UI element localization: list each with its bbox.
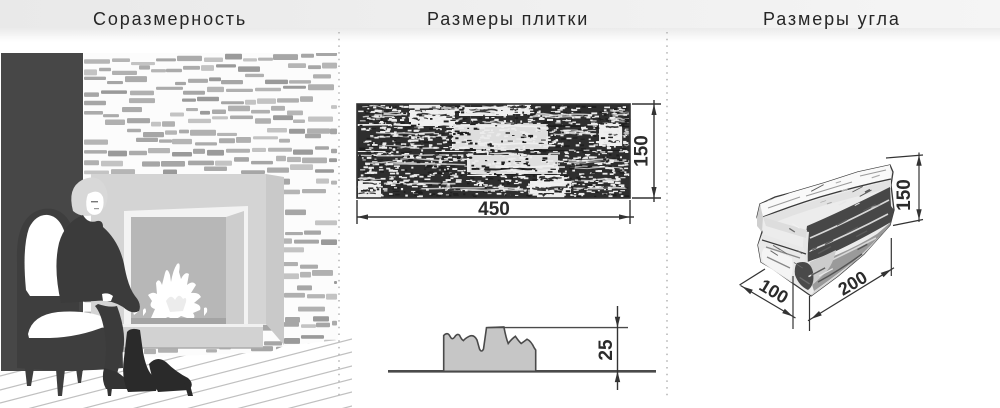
svg-text:25: 25 [596, 339, 617, 361]
svg-text:450: 450 [478, 199, 510, 220]
svg-text:150: 150 [632, 135, 653, 167]
svg-text:150: 150 [894, 179, 915, 211]
svg-text:100: 100 [756, 275, 792, 308]
